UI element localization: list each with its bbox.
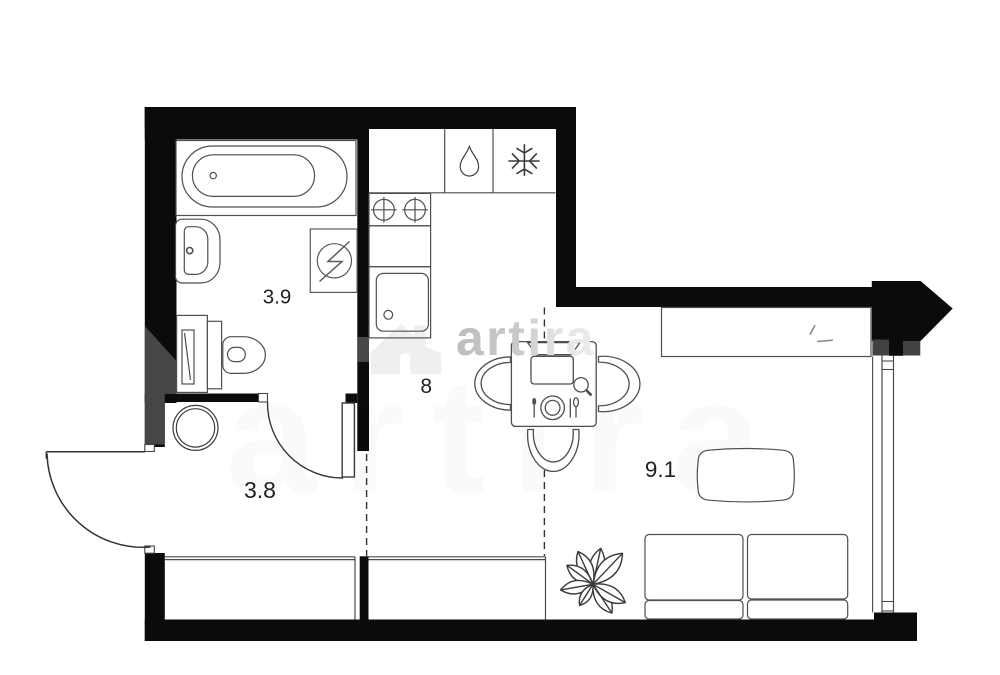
svg-text:8: 8	[420, 375, 432, 398]
svg-text:3.9: 3.9	[263, 286, 292, 309]
svg-text:3.8: 3.8	[244, 477, 276, 503]
svg-text:9.1: 9.1	[645, 457, 676, 482]
svg-text:artira: artira	[456, 310, 596, 366]
svg-text:artira: artira	[226, 346, 787, 527]
